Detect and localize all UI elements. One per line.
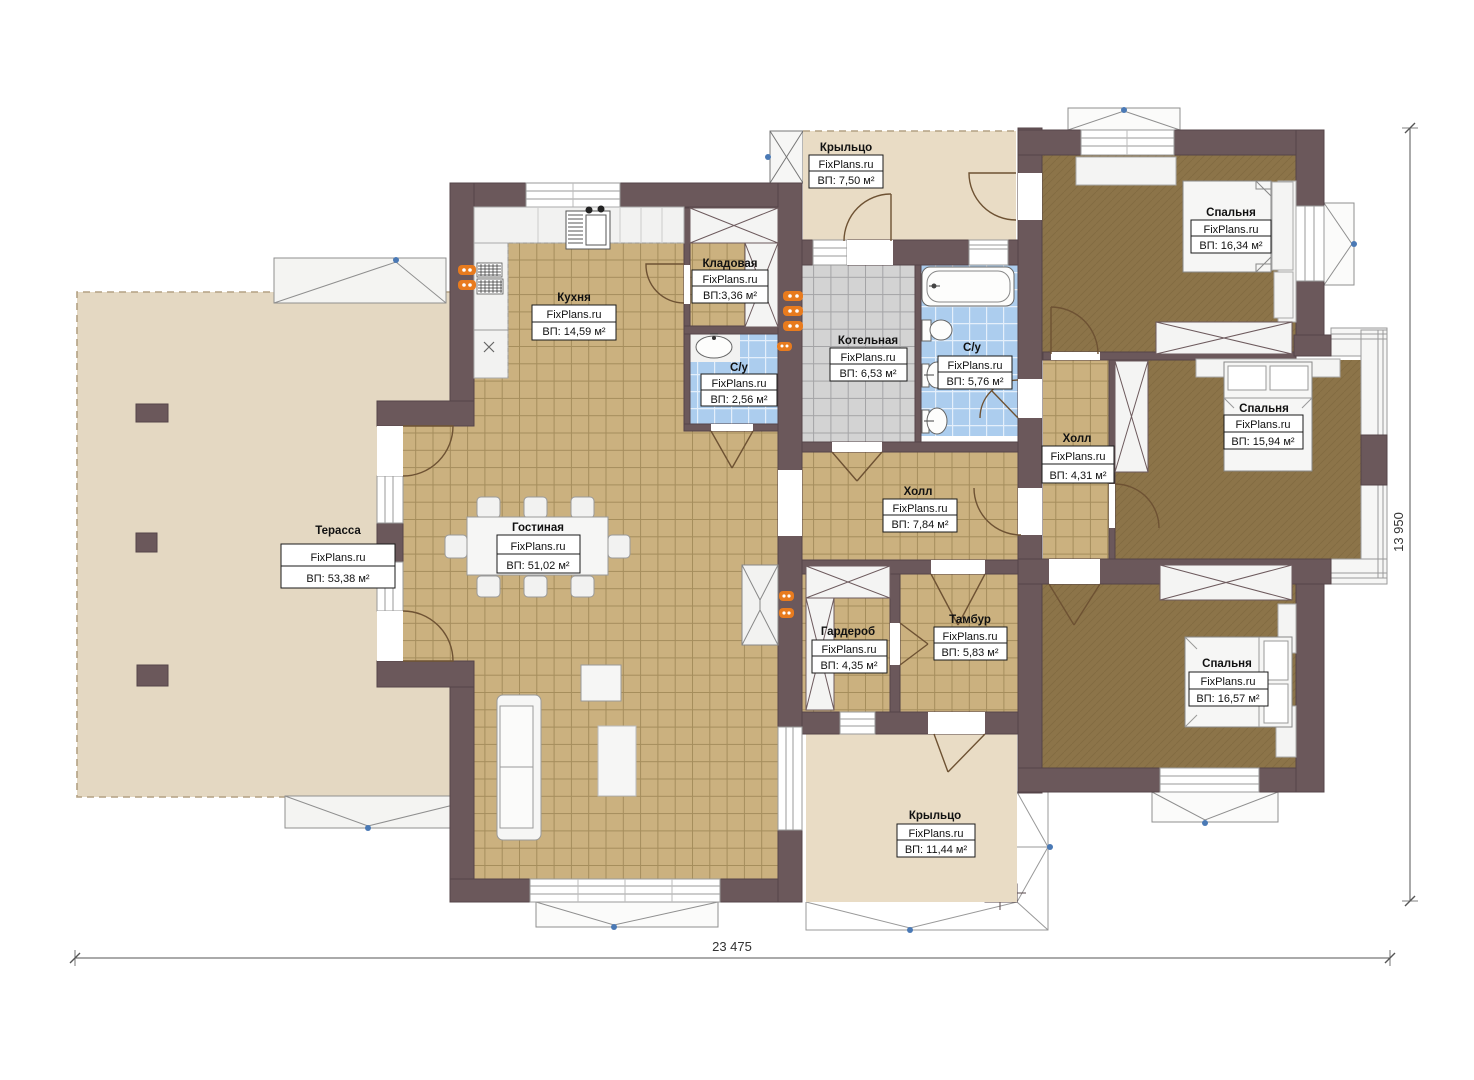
svg-text:FixPlans.ru: FixPlans.ru [1203,224,1258,236]
svg-text:23 475: 23 475 [712,939,752,954]
svg-text:Тамбур: Тамбур [949,614,991,626]
svg-text:Холл: Холл [1063,433,1092,445]
svg-text:ВП: 16,34 м²: ВП: 16,34 м² [1199,240,1263,252]
svg-text:Кухня: Кухня [557,292,591,304]
svg-text:С/у: С/у [730,362,749,374]
svg-text:FixPlans.ru: FixPlans.ru [1050,451,1105,463]
svg-text:FixPlans.ru: FixPlans.ru [1200,676,1255,688]
svg-text:С/у: С/у [963,342,982,354]
svg-text:ВП: 7,84 м²: ВП: 7,84 м² [891,519,948,531]
svg-text:Гостиная: Гостиная [512,522,564,534]
svg-text:FixPlans.ru: FixPlans.ru [310,552,365,564]
svg-text:ВП: 53,38 м²: ВП: 53,38 м² [306,573,370,585]
svg-text:Терасса: Терасса [315,525,361,537]
svg-text:FixPlans.ru: FixPlans.ru [892,503,947,515]
svg-text:13 950: 13 950 [1391,512,1406,552]
svg-text:ВП: 11,44 м²: ВП: 11,44 м² [905,844,968,856]
svg-text:ВП: 16,57 м²: ВП: 16,57 м² [1196,693,1260,705]
svg-text:Кладовая: Кладовая [702,258,757,270]
svg-text:ВП: 6,53 м²: ВП: 6,53 м² [839,368,896,380]
svg-text:ВП: 15,94 м²: ВП: 15,94 м² [1231,436,1295,448]
svg-text:ВП: 14,59 м²: ВП: 14,59 м² [542,326,606,338]
svg-text:FixPlans.ru: FixPlans.ru [821,644,876,656]
svg-text:FixPlans.ru: FixPlans.ru [510,541,565,553]
svg-text:ВП: 5,83 м²: ВП: 5,83 м² [941,647,998,659]
svg-text:FixPlans.ru: FixPlans.ru [546,309,601,321]
svg-text:Гардероб: Гардероб [821,626,875,638]
svg-text:FixPlans.ru: FixPlans.ru [1235,419,1290,431]
svg-text:ВП: 5,76 м²: ВП: 5,76 м² [946,376,1003,388]
svg-text:FixPlans.ru: FixPlans.ru [947,360,1002,372]
svg-text:Спальня: Спальня [1206,207,1256,219]
svg-text:Спальня: Спальня [1202,658,1252,670]
svg-text:ВП: 7,50 м²: ВП: 7,50 м² [817,175,874,187]
svg-text:ВП: 4,31 м²: ВП: 4,31 м² [1049,470,1106,482]
svg-text:ВП: 2,56 м²: ВП: 2,56 м² [710,394,767,406]
svg-text:FixPlans.ru: FixPlans.ru [818,159,873,171]
svg-text:Спальня: Спальня [1239,403,1289,415]
svg-text:FixPlans.ru: FixPlans.ru [840,352,895,364]
svg-text:FixPlans.ru: FixPlans.ru [942,631,997,643]
svg-text:FixPlans.ru: FixPlans.ru [908,828,963,840]
svg-text:ВП: 51,02 м²: ВП: 51,02 м² [506,560,570,572]
svg-text:FixPlans.ru: FixPlans.ru [711,378,766,390]
svg-text:Холл: Холл [904,486,933,498]
svg-text:Котельная: Котельная [838,335,898,347]
svg-text:Крыльцо: Крыльцо [820,142,872,154]
svg-text:ВП: 4,35 м²: ВП: 4,35 м² [820,660,877,672]
svg-text:Крыльцо: Крыльцо [909,810,961,822]
svg-text:FixPlans.ru: FixPlans.ru [702,274,757,286]
svg-text:ВП:3,36 м²: ВП:3,36 м² [703,290,757,302]
